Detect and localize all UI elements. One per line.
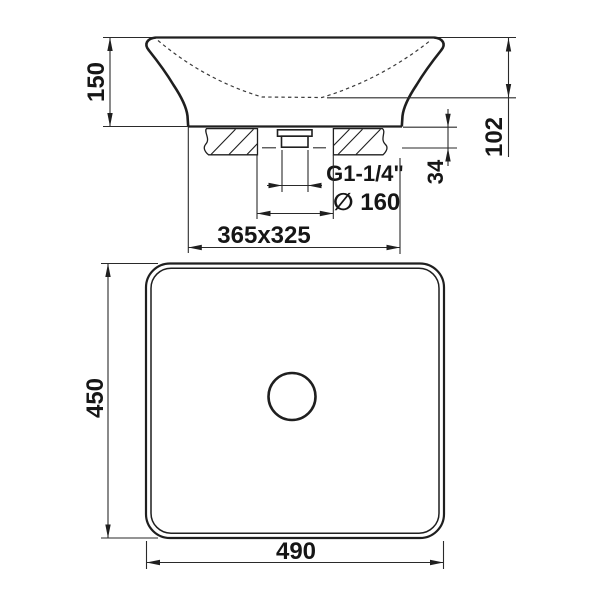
dimension-label-150: 150 xyxy=(83,62,110,102)
basin-profile-left xyxy=(146,38,188,127)
arrowhead-right xyxy=(430,560,444,565)
arrowhead-right xyxy=(320,211,334,216)
arrowhead-up xyxy=(506,38,511,52)
arrowhead-left xyxy=(257,211,271,216)
drain-flange xyxy=(278,130,313,136)
dimension-490: 490 xyxy=(147,538,444,569)
dimension-label-34: 34 xyxy=(423,159,448,184)
drain-hole xyxy=(269,373,316,420)
arrowhead-up xyxy=(445,148,450,162)
basin-profile-right xyxy=(402,38,444,127)
basin-outline-inner xyxy=(151,268,439,533)
arrowhead-down xyxy=(445,114,450,128)
basin-outline-outer xyxy=(146,264,444,539)
technical-drawing-canvas: 150 102 34 G1-1/4" ∅ 160 xyxy=(0,0,600,600)
dimension-label-490: 490 xyxy=(276,538,316,565)
arrowhead-left xyxy=(188,245,202,250)
side-view xyxy=(103,38,516,155)
arrowhead-down xyxy=(105,525,110,539)
countertop-section-left xyxy=(204,129,257,155)
arrowhead-down xyxy=(506,84,511,98)
drain-tailpiece xyxy=(282,136,309,147)
dimension-label-102: 102 xyxy=(481,117,508,157)
dimension-drain-thread: G1-1/4" xyxy=(267,150,404,192)
dimension-label-thread: G1-1/4" xyxy=(326,161,404,186)
dimension-label-diameter: ∅ 160 xyxy=(333,189,400,216)
arrowhead-right xyxy=(269,183,283,188)
basin-inner-bowl-hidden-line xyxy=(158,40,431,98)
dimension-label-footprint: 365x325 xyxy=(217,222,310,249)
arrowhead-up xyxy=(105,264,110,278)
arrowhead-left xyxy=(147,560,161,565)
arrowhead-down xyxy=(107,113,112,127)
arrowhead-up xyxy=(107,38,112,52)
dimension-34: 34 xyxy=(402,109,457,184)
arrowhead-left xyxy=(308,183,322,188)
arrowhead-right xyxy=(387,245,401,250)
washbasin-dimension-drawing: 150 102 34 G1-1/4" ∅ 160 xyxy=(0,0,600,600)
top-view xyxy=(146,264,444,539)
dimension-label-450: 450 xyxy=(82,378,109,418)
